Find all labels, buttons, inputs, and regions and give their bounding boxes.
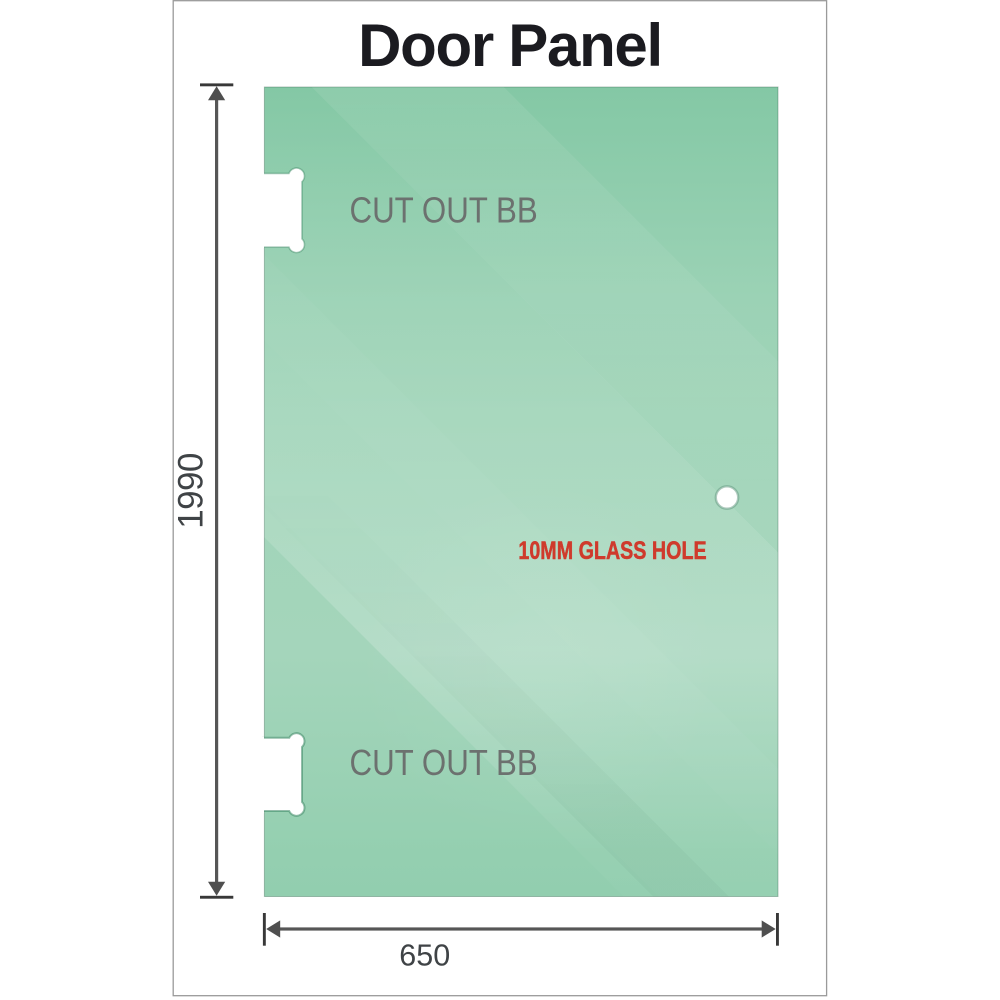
svg-text:CUT OUT BB: CUT OUT BB <box>350 743 538 784</box>
svg-text:650: 650 <box>399 938 450 972</box>
svg-text:1990: 1990 <box>171 453 210 529</box>
svg-text:Door Panel: Door Panel <box>358 12 662 79</box>
svg-text:CUT OUT BB: CUT OUT BB <box>350 190 538 231</box>
svg-text:10MM GLASS HOLE: 10MM GLASS HOLE <box>518 537 706 565</box>
